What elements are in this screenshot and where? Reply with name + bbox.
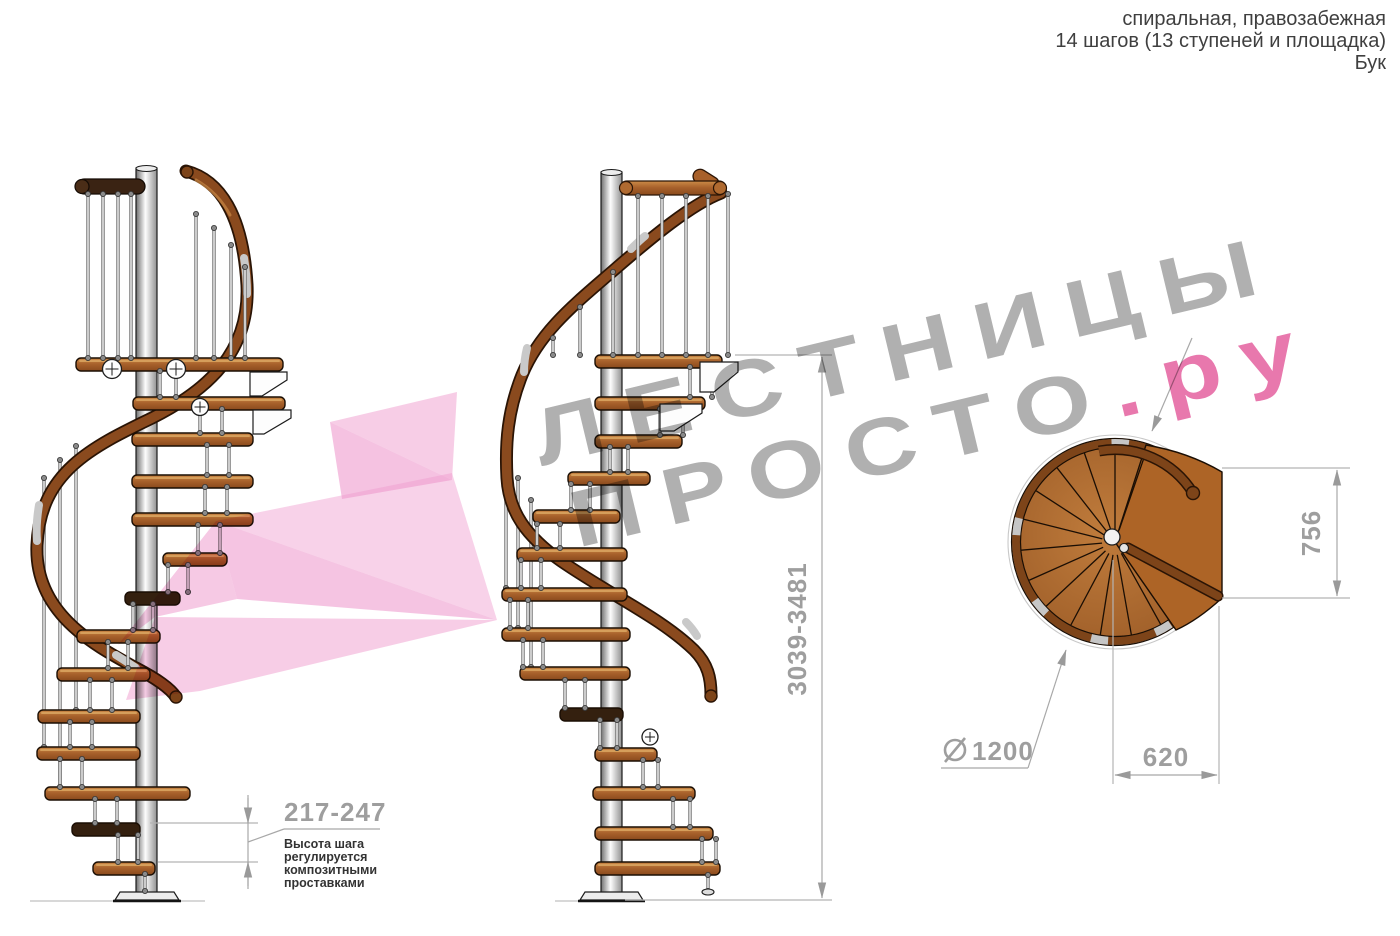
pole-top-cap	[136, 166, 157, 172]
step-height-label: 217-247	[284, 797, 386, 827]
diameter-symbol	[945, 738, 965, 762]
tread	[163, 553, 227, 566]
note-line: проставками	[284, 876, 365, 890]
plan-view	[1008, 435, 1222, 649]
ring-connector	[1091, 638, 1108, 641]
rail-connector	[524, 348, 527, 372]
tread	[132, 475, 253, 488]
drawing-page: спиральная, правозабежная 14 шагов (13 с…	[0, 0, 1400, 936]
plan-center-pole	[1104, 529, 1120, 545]
landing-depth-label: 620	[1143, 742, 1189, 772]
tread	[560, 708, 623, 721]
dim-landing-depth: 620	[1115, 742, 1217, 775]
tread	[37, 747, 140, 760]
note-line: композитными	[284, 863, 377, 877]
handrail-end-cap	[181, 166, 193, 178]
center-pole	[136, 168, 157, 894]
front-staircase-view	[30, 166, 291, 902]
tread	[520, 667, 630, 680]
side-staircase-view	[502, 167, 738, 901]
diameter-value-label: 1200	[972, 736, 1034, 766]
ring-connector	[1112, 443, 1129, 444]
rail-connector	[37, 505, 39, 541]
tread	[72, 823, 140, 836]
dim-step-height: 217-247 Высота шага регулируется компози…	[248, 795, 386, 890]
plan-handrail-cap	[1187, 487, 1200, 500]
note-line: Высота шага	[284, 837, 365, 851]
tread	[132, 433, 253, 446]
ring-connector	[1016, 518, 1019, 535]
tread	[57, 668, 150, 681]
tread	[132, 513, 253, 526]
plan-rail-joint	[1120, 544, 1129, 553]
landing-handrail	[620, 181, 726, 195]
step-bracket	[253, 410, 291, 434]
pole-top-cap	[601, 170, 622, 176]
rail-connector	[686, 622, 697, 636]
note-line: регулируется	[284, 850, 367, 864]
dim-total-height: 3039-3481	[782, 357, 822, 898]
dim-landing-width: 756	[1296, 470, 1337, 596]
baluster-foot	[702, 889, 714, 895]
mounting-plates	[642, 729, 658, 745]
technical-drawing: 3039-3481 756 620 1200 217-247	[0, 0, 1400, 936]
landing-rail-cap	[620, 182, 633, 195]
step-height-note: Высота шага регулируется композитными пр…	[284, 837, 377, 890]
step-bracket	[660, 404, 702, 431]
pole-base-flange	[580, 892, 643, 900]
tread	[595, 748, 657, 761]
step-bracket	[700, 362, 738, 392]
handrail-end-cap	[170, 691, 182, 703]
landing-rail-cap	[714, 182, 727, 195]
tread	[595, 827, 713, 840]
tread	[533, 510, 620, 523]
step-bracket	[250, 372, 287, 396]
total-height-label: 3039-3481	[782, 562, 812, 695]
tread	[77, 630, 160, 643]
landing-width-label: 756	[1296, 510, 1326, 556]
handrail-end-cap	[705, 690, 717, 702]
tread	[517, 548, 627, 561]
